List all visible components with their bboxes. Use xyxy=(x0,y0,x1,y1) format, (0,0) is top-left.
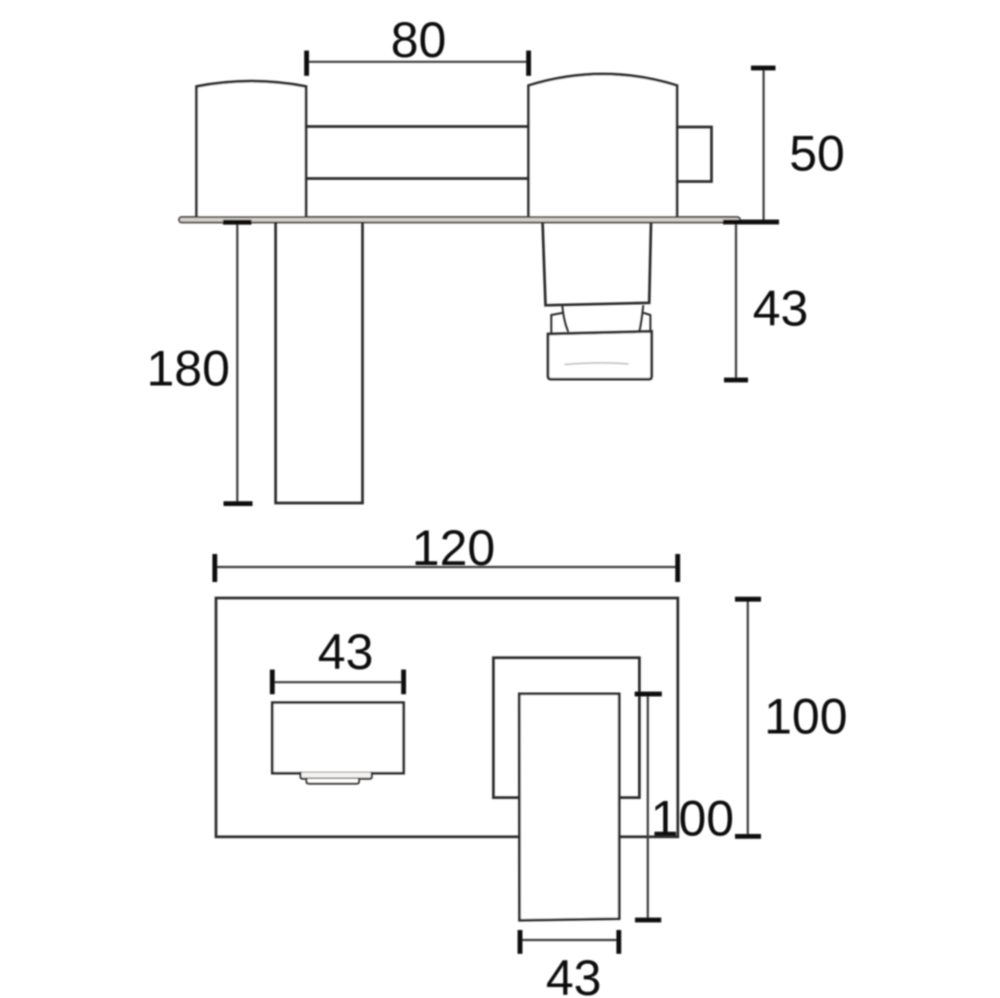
svg-text:100: 100 xyxy=(764,689,847,745)
svg-text:120: 120 xyxy=(412,520,495,576)
svg-text:43: 43 xyxy=(546,950,602,998)
svg-text:43: 43 xyxy=(318,624,374,680)
svg-text:180: 180 xyxy=(146,341,229,397)
svg-text:100: 100 xyxy=(651,791,734,847)
svg-text:80: 80 xyxy=(391,12,447,68)
svg-text:50: 50 xyxy=(789,126,845,182)
svg-text:43: 43 xyxy=(753,281,809,337)
